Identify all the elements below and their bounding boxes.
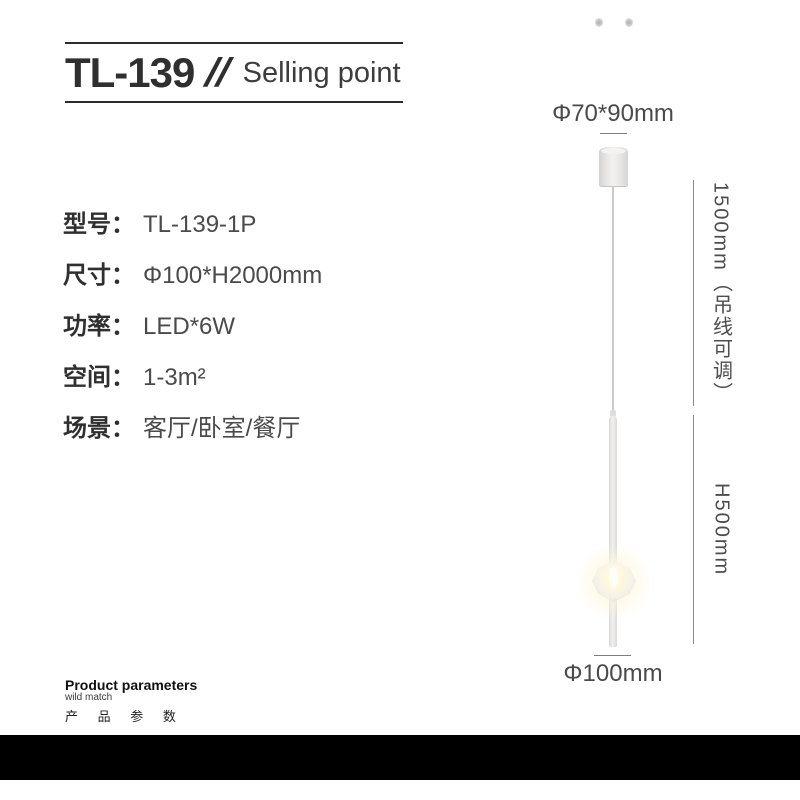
spec-row-model: 型号：TL-139-1P	[63, 204, 322, 229]
bottom-black-bar	[0, 735, 800, 780]
spec-label: 场景：	[63, 415, 135, 442]
spec-label: 尺寸：	[63, 262, 135, 289]
spec-label: 功率：	[63, 313, 135, 340]
rod-dimension-line	[693, 415, 694, 644]
rod-dimension-label: H500mm	[700, 415, 742, 644]
spec-row-scene: 场景：客厅/卧室/餐厅	[63, 408, 322, 433]
spec-value: LED*6W	[143, 313, 235, 340]
led-light-source	[609, 566, 618, 588]
crystal-facet-right	[625, 18, 633, 27]
spec-value: TL-139-1P	[143, 211, 256, 238]
lamp-canopy	[599, 147, 628, 187]
spec-label: 空间：	[63, 364, 135, 391]
header-top-rule	[65, 42, 403, 44]
page-title: TL-139 // Selling point	[65, 47, 403, 99]
product-spec-page: TL-139 // Selling point 型号：TL-139-1P 尺寸：…	[0, 0, 800, 800]
wire-dimension-text: 1500mm（吊线可调）	[707, 182, 736, 404]
rod-dimension-text: H500mm	[710, 483, 733, 576]
base-tick-line	[594, 655, 631, 656]
wire-dimension-label: 1500mm（吊线可调）	[700, 180, 742, 406]
selling-point-subtitle: Selling point	[243, 57, 401, 90]
spec-value: Φ100*H2000mm	[143, 262, 322, 289]
double-slash-divider: //	[203, 51, 232, 96]
spec-row-size: 尺寸：Φ100*H2000mm	[63, 255, 322, 280]
spec-row-power: 功率：LED*6W	[63, 306, 322, 331]
footer-title: Product parameters	[65, 677, 197, 693]
spec-value: 1-3m²	[143, 364, 206, 391]
footer-subtitle: wild match	[65, 692, 112, 703]
canopy-dimension-label: Φ70*90mm	[540, 100, 686, 128]
footer-caption-chinese: 产 品 参 数	[65, 706, 184, 725]
crystal-facet-left	[595, 18, 603, 27]
base-dimension-label: Φ100mm	[545, 660, 681, 688]
wire-dimension-line	[693, 180, 694, 406]
spec-value: 客厅/卧室/餐厅	[143, 415, 300, 442]
header-bottom-rule	[65, 101, 403, 103]
canopy-tick-line	[600, 133, 627, 134]
spec-row-space: 空间：1-3m²	[63, 357, 322, 382]
lamp-suspension-wire	[612, 187, 614, 412]
spec-list: 型号：TL-139-1P 尺寸：Φ100*H2000mm 功率：LED*6W 空…	[63, 204, 322, 459]
product-model-title: TL-139	[65, 49, 194, 97]
spec-label: 型号：	[63, 211, 135, 238]
